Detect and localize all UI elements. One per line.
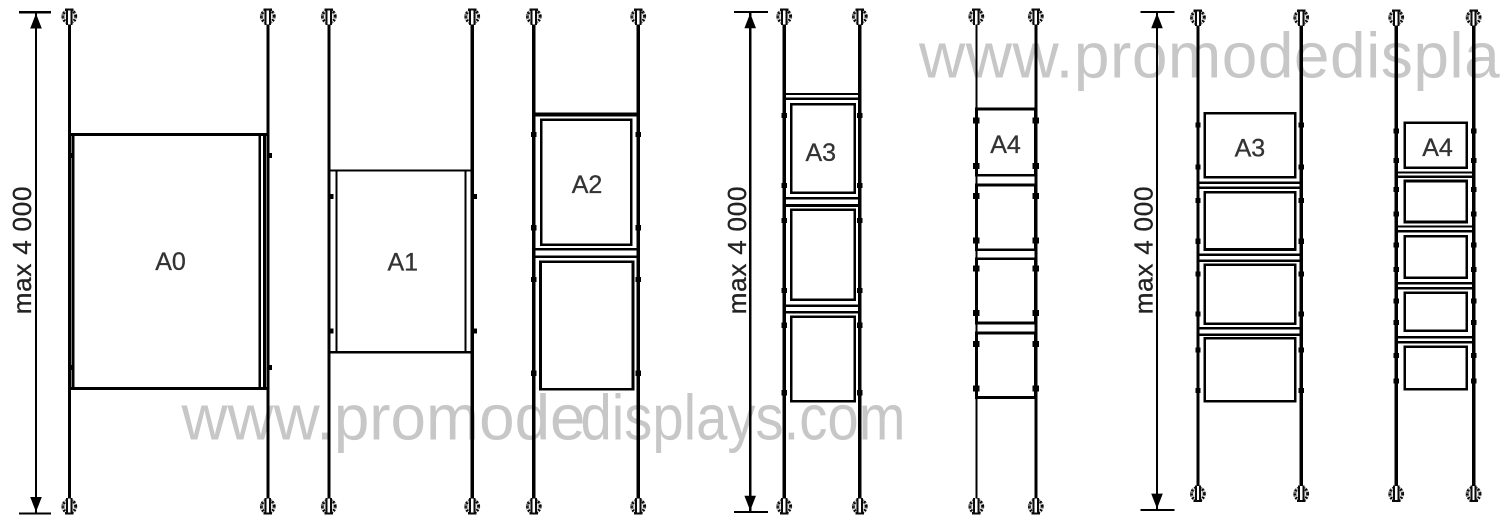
svg-text:A1: A1 xyxy=(388,249,419,277)
svg-text:max 4 000: max 4 000 xyxy=(7,186,37,315)
svg-text:www.promode: www.promode xyxy=(181,382,586,454)
svg-text:displays.com: displays.com xyxy=(581,382,906,454)
svg-text:A3: A3 xyxy=(1235,135,1266,163)
svg-text:A0: A0 xyxy=(155,248,186,276)
svg-text:A2: A2 xyxy=(572,171,603,199)
svg-text:max 4 000: max 4 000 xyxy=(722,186,752,315)
svg-text:A3: A3 xyxy=(806,139,837,167)
svg-text:A4: A4 xyxy=(990,131,1021,159)
svg-text:max 4 000: max 4 000 xyxy=(1129,186,1159,315)
svg-text:www.promodedisplays.com: www.promodedisplays.com xyxy=(918,20,1500,92)
svg-text:A4: A4 xyxy=(1422,134,1453,162)
